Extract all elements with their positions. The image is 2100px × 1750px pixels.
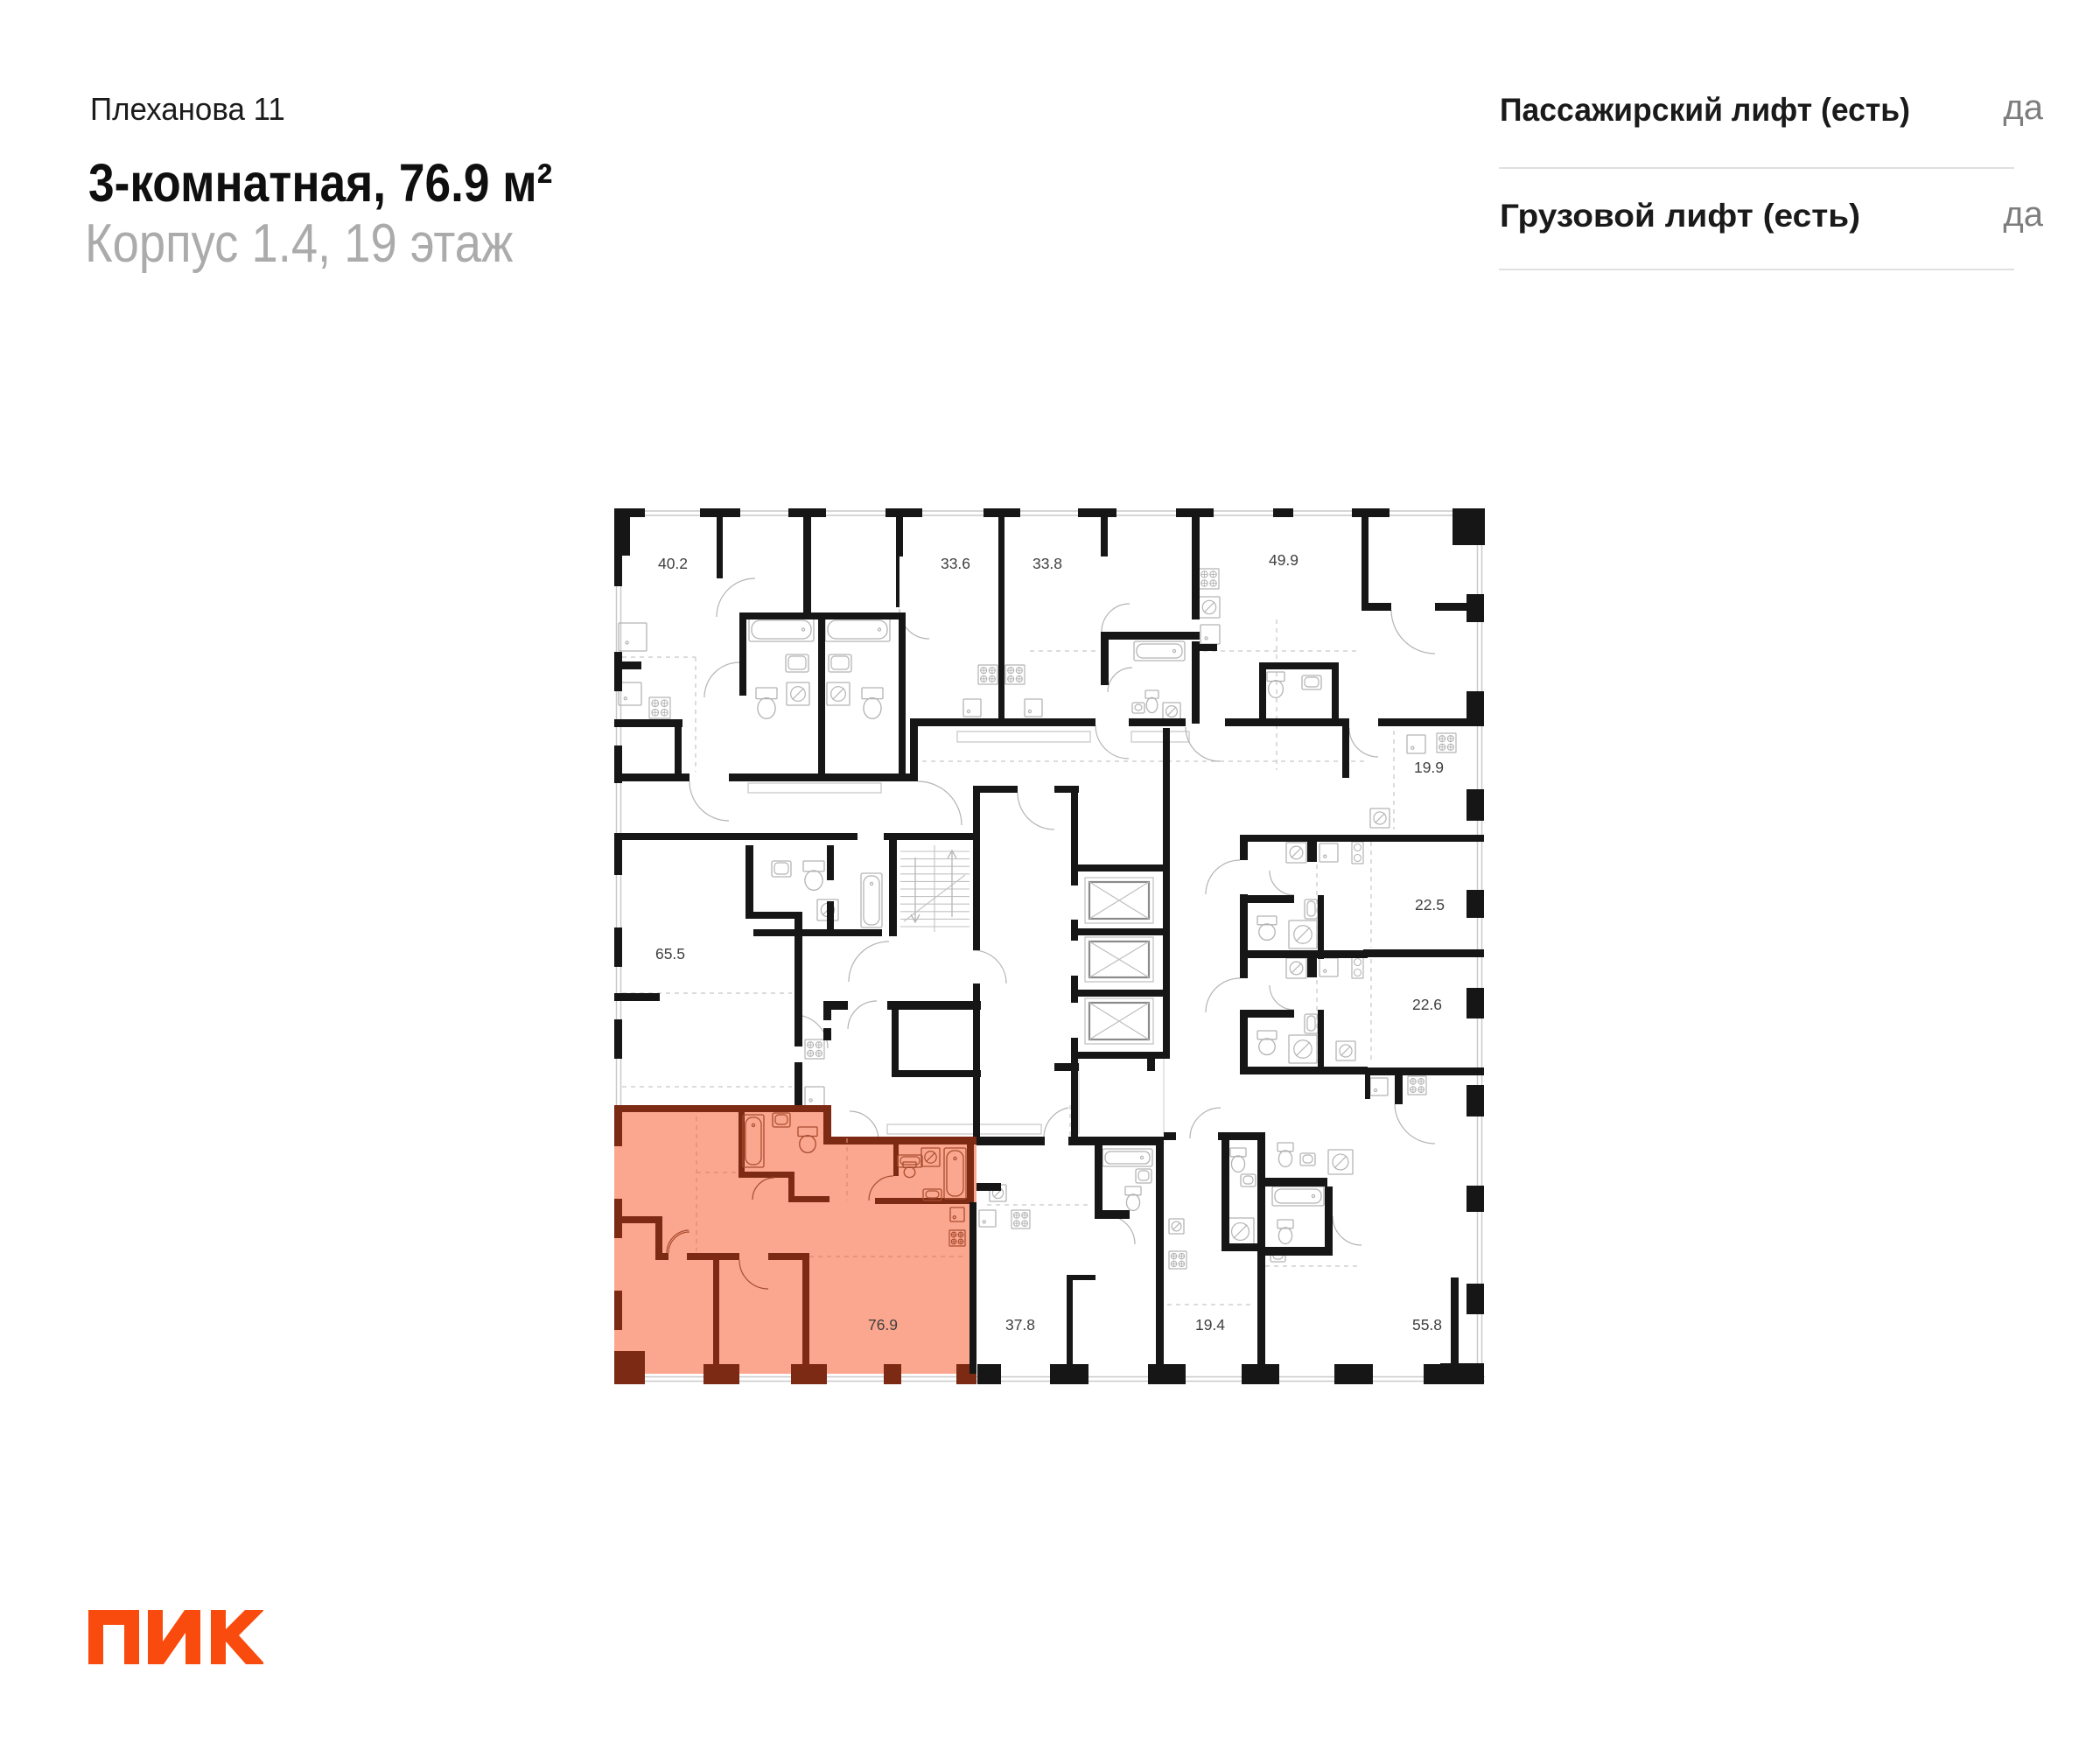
svg-text:33.8: 33.8 (1032, 555, 1062, 572)
svg-text:55.8: 55.8 (1412, 1316, 1442, 1333)
svg-text:33.6: 33.6 (941, 555, 970, 572)
svg-text:19.9: 19.9 (1414, 759, 1444, 776)
svg-text:65.5: 65.5 (655, 945, 685, 962)
svg-text:22.6: 22.6 (1412, 996, 1442, 1013)
svg-text:76.9: 76.9 (868, 1316, 898, 1333)
svg-text:37.8: 37.8 (1005, 1316, 1035, 1333)
svg-text:22.5: 22.5 (1415, 896, 1445, 913)
svg-text:19.4: 19.4 (1195, 1316, 1225, 1333)
svg-text:49.9: 49.9 (1269, 551, 1298, 569)
svg-text:40.2: 40.2 (658, 555, 688, 572)
